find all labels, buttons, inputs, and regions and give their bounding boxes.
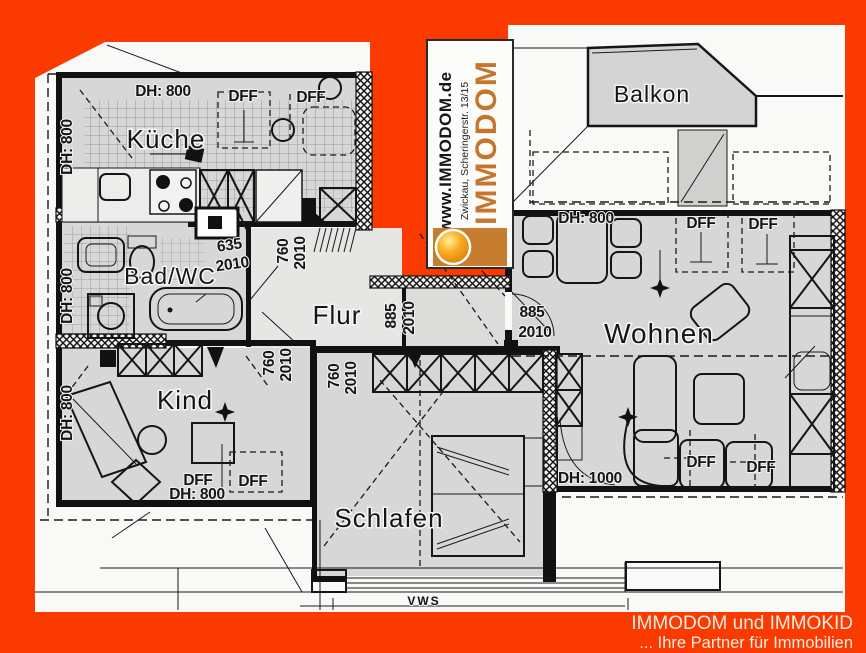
meas-2010: 2010 <box>292 236 309 269</box>
meas-760: 760 <box>261 351 278 376</box>
meas-2010: 2010 <box>401 301 418 334</box>
meas-dh800-kueche-top: DH: 800 <box>135 83 191 100</box>
meas-760: 760 <box>326 364 343 389</box>
room-label-balkon: Balkon <box>614 81 690 107</box>
meas-dff: DFF <box>228 88 257 105</box>
meas-2010: 2010 <box>518 324 551 341</box>
floorplan-advert: Küche Bad/WC Flur Kind Schlafen Wohnen B… <box>0 0 866 653</box>
meas-dff: DFF <box>746 459 775 476</box>
meas-dh800-kind: DH: 800 <box>169 486 225 503</box>
room-label-flur: Flur <box>313 300 362 330</box>
meas-dff: DFF <box>748 216 777 233</box>
orange-sphere-icon <box>436 230 470 264</box>
room-label-bad: Bad/WC <box>124 263 216 289</box>
meas-2010: 2010 <box>278 348 295 381</box>
room-label-kind: Kind <box>157 385 213 415</box>
room-label-kueche: Küche <box>127 124 206 154</box>
meas-dh800-left: DH: 800 <box>59 119 76 175</box>
meas-635: 635 <box>216 235 244 255</box>
meas-dh800-left: DH: 800 <box>59 268 76 324</box>
logo-website-text: www.IMMODOM.de <box>436 71 455 233</box>
meas-dh800-wohnen: DH: 800 <box>558 210 614 227</box>
immodom-logo-banner: www.IMMODOM.de Zwickau, Scheringerstr. 1… <box>427 40 513 268</box>
footer-line2: ... Ihre Partner für Immobilien <box>639 634 853 652</box>
meas-dff: DFF <box>686 454 715 471</box>
logo-brand-text: IMMODOM <box>470 59 503 225</box>
room-label-schlafen: Schlafen <box>334 503 443 533</box>
meas-2010: 2010 <box>343 361 360 394</box>
meas-dh1000: DH: 1000 <box>558 470 622 487</box>
meas-dff: DFF <box>238 473 267 490</box>
footer-captions: IMMODOM und IMMOKID ... Ihre Partner für… <box>631 613 853 652</box>
room-label-wohnen: Wohnen <box>604 318 714 349</box>
meas-dff: DFF <box>686 215 715 232</box>
meas-885: 885 <box>383 303 400 329</box>
meas-vws: VWS <box>407 594 440 608</box>
footer-line1: IMMODOM und IMMOKID <box>631 613 853 634</box>
meas-885: 885 <box>520 304 546 321</box>
floorplan-canvas: Küche Bad/WC Flur Kind Schlafen Wohnen B… <box>0 0 866 653</box>
meas-dff: DFF <box>296 89 325 106</box>
meas-760: 760 <box>275 239 292 264</box>
meas-dh800-left: DH: 800 <box>59 385 76 441</box>
